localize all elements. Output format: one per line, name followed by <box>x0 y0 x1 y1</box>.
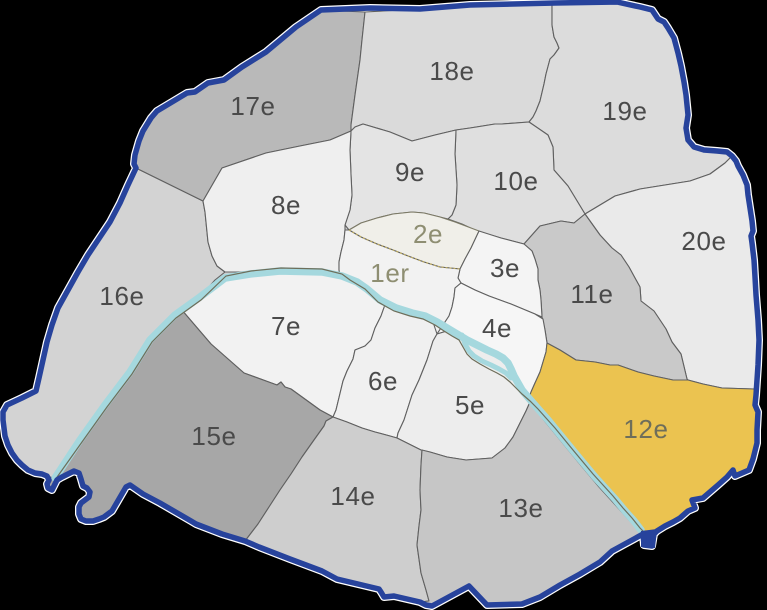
svg-text:1er: 1er <box>370 258 409 288</box>
svg-text:16e: 16e <box>99 281 144 311</box>
svg-text:6e: 6e <box>368 366 398 396</box>
svg-text:4e: 4e <box>482 313 512 343</box>
svg-text:13e: 13e <box>498 493 543 523</box>
svg-text:19e: 19e <box>602 96 647 126</box>
svg-text:10e: 10e <box>493 166 538 196</box>
svg-text:11e: 11e <box>570 279 613 309</box>
svg-text:2e: 2e <box>413 219 443 249</box>
svg-text:17e: 17e <box>230 91 275 121</box>
svg-text:5e: 5e <box>455 390 485 420</box>
svg-text:15e: 15e <box>191 421 236 451</box>
svg-text:3e: 3e <box>490 253 520 283</box>
svg-text:8e: 8e <box>271 190 301 220</box>
svg-text:7e: 7e <box>271 311 301 341</box>
svg-text:18e: 18e <box>429 56 474 86</box>
svg-text:12e: 12e <box>623 414 668 444</box>
svg-text:9e: 9e <box>395 157 425 187</box>
svg-text:20e: 20e <box>681 226 726 256</box>
svg-text:14e: 14e <box>330 481 375 511</box>
